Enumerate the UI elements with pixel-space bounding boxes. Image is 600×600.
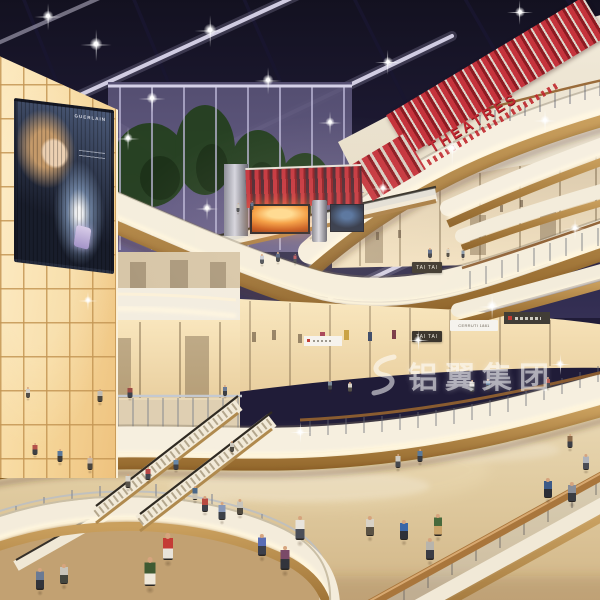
silver-column <box>312 200 327 242</box>
store-sign-dark-logo <box>504 312 550 324</box>
perfume-bottle-graphic <box>74 225 92 250</box>
perfume-ad-billboard: GUERLAIN <box>14 98 114 274</box>
store-sign-cerruti: CERRUTI 1881 <box>450 320 498 331</box>
billboard-caption-lines <box>79 150 105 163</box>
cinema-red-slat-facade <box>245 164 362 208</box>
mall-atrium-rendering: GUERLAIN THEATRES TAI TAI TAI TAI CERRUT… <box>0 0 600 600</box>
billboard-brand-text: GUERLAIN <box>75 113 107 122</box>
cinema-grey-pillar <box>224 164 248 236</box>
store-sign-tai-tai-upper: TAI TAI <box>412 262 442 273</box>
led-screen-dark <box>330 204 364 232</box>
led-screen-fire <box>250 204 310 234</box>
store-sign-light-logo <box>304 336 342 346</box>
store-sign-tai-tai-lower: TAI TAI <box>412 331 442 342</box>
